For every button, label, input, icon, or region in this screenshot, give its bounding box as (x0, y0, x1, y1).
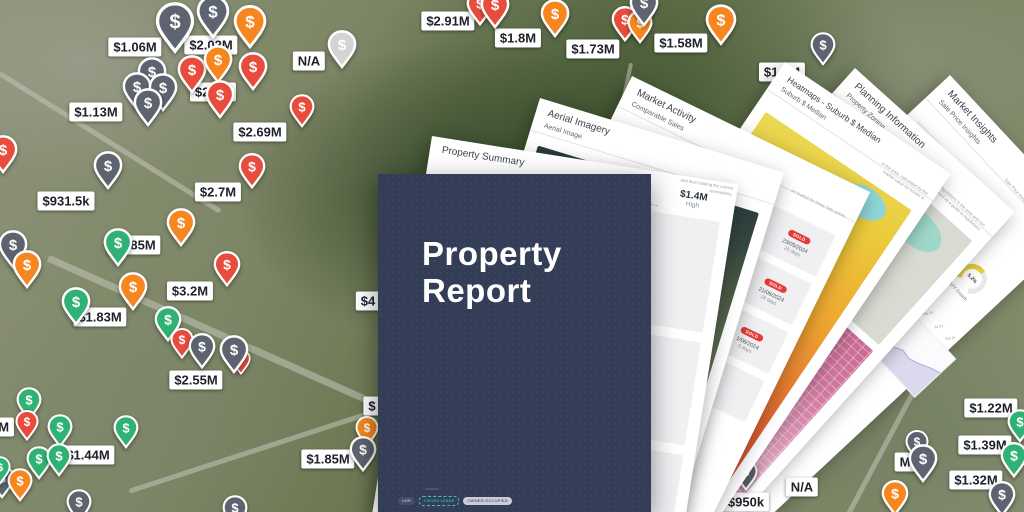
svg-text:$: $ (208, 2, 218, 21)
price-pin[interactable]: $ (0, 456, 11, 490)
cover-badge: OWNER OCCUPIED (463, 497, 511, 505)
price-label[interactable]: 5M (0, 418, 14, 437)
x-tick-label: Sep 24 (945, 336, 957, 348)
price-pin[interactable]: $ (133, 88, 163, 132)
cover-badges: LMRCROSS LEASEOWNER OCCUPIED (398, 496, 512, 506)
svg-text:$: $ (359, 441, 367, 457)
svg-text:$: $ (55, 448, 63, 463)
price-pin[interactable]: $ (1000, 442, 1024, 483)
svg-text:$: $ (75, 494, 83, 509)
report-title: Property Report (422, 236, 562, 310)
price-pin[interactable]: $ (327, 30, 357, 74)
price-label[interactable]: N/A (786, 478, 818, 497)
price-pin[interactable]: $ (196, 0, 230, 44)
price-pin[interactable]: $ (238, 153, 266, 194)
svg-text:$: $ (188, 62, 197, 79)
svg-text:$: $ (919, 451, 928, 468)
price-pin[interactable]: $ (118, 272, 148, 316)
price-pin[interactable]: $ (213, 251, 241, 292)
price-pin[interactable]: $ (705, 4, 737, 51)
svg-text:$: $ (245, 12, 255, 31)
svg-text:$: $ (0, 462, 3, 474)
svg-text:$: $ (169, 12, 180, 34)
svg-text:$: $ (230, 342, 239, 359)
price-label[interactable]: $2.7M (195, 183, 241, 202)
price-pin[interactable]: $ (540, 0, 570, 43)
svg-text:$: $ (122, 420, 130, 435)
svg-text:$: $ (338, 37, 347, 54)
svg-text:$: $ (231, 500, 239, 512)
x-tick-label: Jul 24 (934, 324, 945, 336)
price-pin[interactable]: $ (629, 0, 659, 32)
price-pin[interactable]: $ (810, 32, 836, 71)
svg-text:$: $ (164, 311, 172, 327)
svg-text:$: $ (16, 473, 24, 488)
price-pin[interactable]: $ (205, 80, 235, 124)
svg-text:$: $ (179, 333, 186, 347)
price-pin[interactable]: $ (238, 52, 268, 96)
price-label[interactable]: $2.69M (233, 123, 286, 142)
svg-text:$: $ (248, 158, 256, 174)
price-pin[interactable]: $ (166, 208, 196, 252)
svg-text:$: $ (819, 37, 827, 52)
report-cover[interactable]: Property Report LMRCROSS LEASEOWNER OCCU… (378, 174, 651, 512)
price-pin[interactable]: $ (881, 480, 909, 512)
svg-text:$: $ (298, 99, 306, 114)
svg-text:$: $ (214, 52, 223, 69)
price-label[interactable]: N/A (293, 52, 325, 71)
price-pin[interactable]: $ (46, 443, 72, 482)
price-pin[interactable]: $ (93, 151, 123, 195)
svg-text:$: $ (0, 142, 8, 159)
svg-text:$: $ (56, 419, 64, 434)
svg-text:$: $ (216, 87, 225, 104)
price-pin[interactable]: $ (289, 94, 315, 133)
price-label[interactable]: $1.85M (301, 450, 354, 469)
hero-stage: $1.06M$2.02MN/A$2.2M$1.13M$2.69M$931.5k$… (0, 0, 1024, 512)
svg-text:$: $ (104, 158, 113, 175)
price-pin[interactable]: $ (908, 444, 938, 488)
price-label[interactable]: $1.58M (654, 34, 707, 53)
svg-text:$: $ (144, 95, 153, 112)
price-pin[interactable]: $ (222, 495, 248, 512)
price-label[interactable]: $4 (356, 292, 380, 311)
svg-text:$: $ (891, 485, 899, 501)
svg-text:$: $ (23, 257, 32, 274)
price-label[interactable]: $1.06M (108, 38, 161, 57)
price-pin[interactable]: $ (233, 5, 267, 54)
svg-text:$: $ (198, 338, 206, 354)
svg-text:$: $ (129, 279, 138, 296)
cover-dash (425, 488, 439, 490)
cover-badge: LMR (398, 497, 415, 505)
price-label[interactable]: $3.2M (167, 282, 213, 301)
svg-text:$: $ (72, 294, 81, 311)
price-pin[interactable]: $ (188, 333, 216, 374)
price-pin[interactable]: $ (0, 135, 18, 179)
price-pin[interactable]: $ (113, 415, 139, 454)
svg-text:$: $ (35, 451, 43, 466)
svg-text:$: $ (25, 392, 33, 407)
svg-text:$: $ (364, 421, 371, 435)
svg-text:$: $ (640, 0, 649, 12)
price-label[interactable]: $1.13M (69, 103, 122, 122)
price-pin[interactable]: $ (219, 335, 249, 379)
svg-text:$: $ (249, 59, 258, 76)
svg-text:$: $ (223, 256, 231, 272)
price-pin[interactable]: $ (103, 228, 133, 272)
svg-text:$: $ (551, 6, 560, 23)
cover-badge: CROSS LEASE (419, 496, 459, 506)
price-pin[interactable]: $ (12, 250, 42, 294)
price-pin[interactable]: $ (61, 287, 91, 331)
price-label[interactable]: $931.5k (38, 192, 95, 211)
svg-text:$: $ (717, 12, 726, 29)
price-pin[interactable]: $ (480, 0, 510, 34)
svg-text:$: $ (1010, 447, 1018, 463)
price-pin[interactable]: $ (15, 410, 39, 446)
svg-text:$: $ (24, 415, 31, 429)
svg-text:$: $ (177, 215, 186, 232)
price-pin[interactable]: $ (155, 2, 195, 59)
svg-text:$: $ (491, 0, 500, 14)
price-pin[interactable]: $ (988, 481, 1016, 512)
svg-text:$: $ (1016, 414, 1024, 429)
svg-text:$: $ (114, 235, 123, 252)
svg-text:$: $ (998, 486, 1006, 502)
price-pin[interactable]: $ (349, 436, 377, 477)
price-pin[interactable]: $ (66, 489, 92, 512)
